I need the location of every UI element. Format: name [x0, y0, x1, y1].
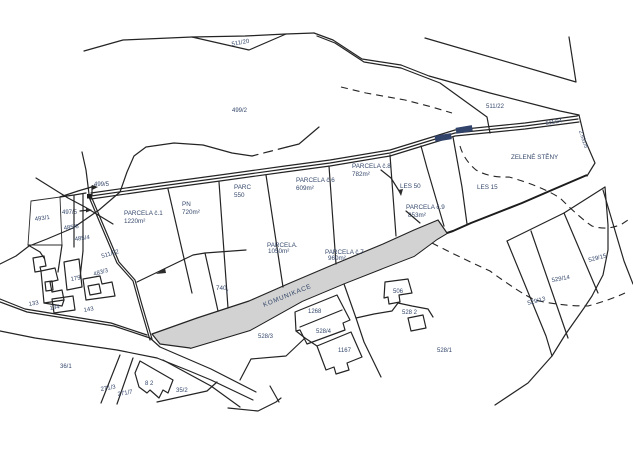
svg-text:550: 550 — [234, 192, 245, 199]
svg-text:528/1: 528/1 — [437, 348, 453, 354]
svg-text:PARCELA č.6: PARCELA č.6 — [296, 177, 335, 184]
svg-text:506: 506 — [393, 289, 404, 295]
svg-text:1050m²: 1050m² — [268, 248, 289, 255]
svg-text:PARCELA č.8: PARCELA č.8 — [352, 163, 391, 170]
svg-text:499/5: 499/5 — [94, 182, 110, 188]
svg-text:528/4: 528/4 — [316, 329, 332, 335]
svg-text:499/2: 499/2 — [232, 108, 248, 114]
svg-text:511/22: 511/22 — [486, 104, 505, 110]
svg-text:PARC: PARC — [234, 184, 251, 191]
svg-text:36/1: 36/1 — [60, 364, 72, 370]
svg-text:35/2: 35/2 — [176, 388, 188, 394]
svg-text:609m²: 609m² — [296, 185, 314, 192]
svg-text:1268: 1268 — [308, 309, 322, 315]
svg-text:497/5: 497/5 — [62, 210, 78, 216]
svg-text:PN: PN — [182, 201, 191, 208]
svg-text:PARCELA č.1: PARCELA č.1 — [124, 210, 163, 217]
svg-text:ZELENÉ STĚNY: ZELENÉ STĚNY — [511, 152, 559, 161]
svg-text:528 2: 528 2 — [402, 310, 418, 316]
svg-text:960m²: 960m² — [328, 255, 346, 262]
svg-text:LES 15: LES 15 — [477, 184, 498, 191]
svg-text:1167: 1167 — [338, 348, 352, 354]
svg-text:720m²: 720m² — [182, 209, 200, 216]
svg-text:PARCELA č.9: PARCELA č.9 — [406, 204, 445, 211]
svg-text:1220m²: 1220m² — [124, 218, 145, 225]
svg-text:8 2: 8 2 — [145, 381, 154, 387]
svg-text:782m²: 782m² — [352, 171, 370, 178]
svg-text:LES 50: LES 50 — [400, 183, 421, 190]
svg-text:528/3: 528/3 — [258, 334, 274, 340]
